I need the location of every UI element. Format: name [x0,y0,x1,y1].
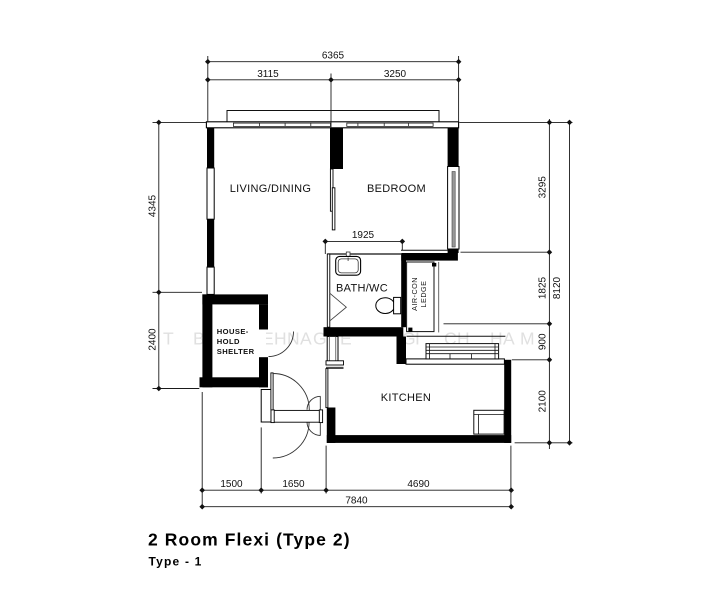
svg-text:1500: 1500 [220,479,243,490]
svg-text:900: 900 [538,333,549,350]
svg-text:H: H [274,329,287,349]
svg-text:AIR-CON: AIR-CON [410,277,419,311]
svg-text:3250: 3250 [384,69,407,80]
svg-text:2100: 2100 [538,390,549,413]
svg-text:SHELTER: SHELTER [217,347,255,356]
svg-text:1925: 1925 [352,230,375,241]
svg-text:Type - 1: Type - 1 [149,555,203,569]
svg-text:A: A [503,329,515,349]
svg-text:4690: 4690 [407,479,430,490]
svg-text:HOUSE-: HOUSE- [217,327,249,336]
svg-text:7840: 7840 [345,496,368,507]
svg-text:1825: 1825 [538,276,549,299]
svg-text:2400: 2400 [148,328,159,351]
svg-text:BEDROOM: BEDROOM [367,183,426,195]
svg-text:1650: 1650 [282,479,305,490]
svg-text:6365: 6365 [322,51,345,62]
svg-text:A: A [300,329,312,349]
svg-text:2 Room Flexi (Type 2): 2 Room Flexi (Type 2) [148,530,351,550]
svg-text:M: M [520,329,535,349]
svg-text:BATH/WC: BATH/WC [336,283,388,295]
svg-text:KITCHEN: KITCHEN [381,392,431,404]
svg-text:4345: 4345 [148,194,159,217]
svg-text:LIVING/DINING: LIVING/DINING [230,183,312,195]
svg-text:HOLD: HOLD [217,337,240,346]
svg-text:3295: 3295 [538,176,549,199]
svg-text:3115: 3115 [257,69,279,80]
svg-text:8120: 8120 [552,276,563,299]
svg-text:LEDGE: LEDGE [419,281,428,308]
svg-text:T: T [163,329,174,349]
